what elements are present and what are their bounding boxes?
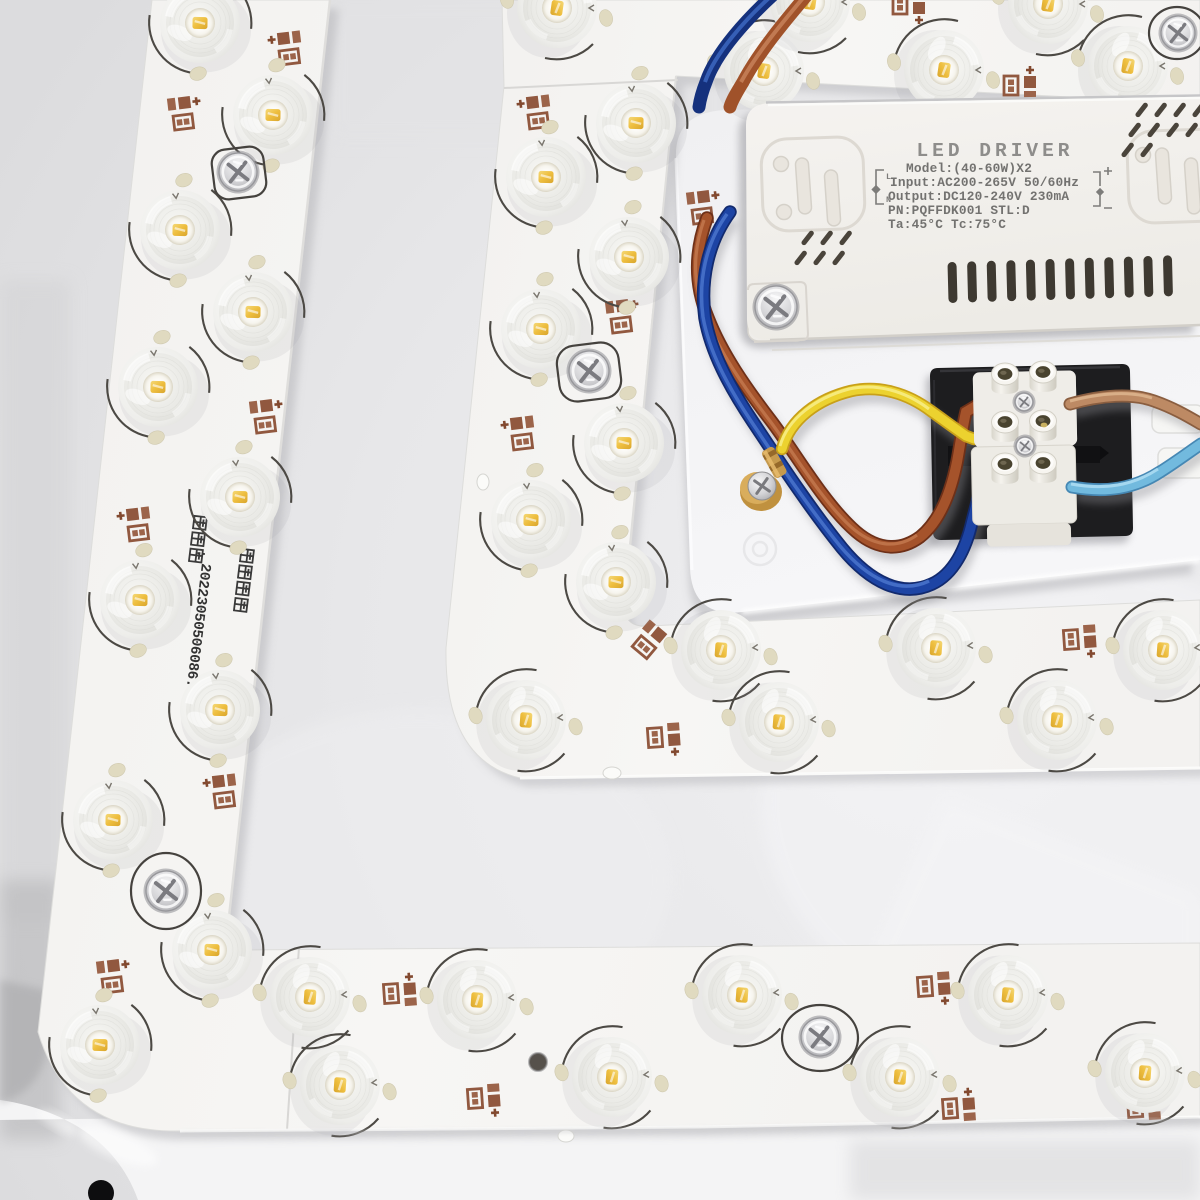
svg-text:L: L [886, 172, 891, 182]
svg-text:N: N [886, 195, 891, 205]
svg-text:Output:DC120-240V 230mA: Output:DC120-240V 230mA [888, 189, 1069, 204]
svg-text:Ta:45°C Tc:75°C: Ta:45°C Tc:75°C [888, 217, 1006, 232]
svg-text:Input:AC200-265V 50/60Hz: Input:AC200-265V 50/60Hz [890, 175, 1079, 190]
svg-text:Model:(40-60W)X2: Model:(40-60W)X2 [906, 161, 1032, 176]
svg-text:LED DRIVER: LED DRIVER [916, 140, 1073, 162]
svg-text:PN:PQFFDK001 STL:D: PN:PQFFDK001 STL:D [888, 203, 1030, 218]
